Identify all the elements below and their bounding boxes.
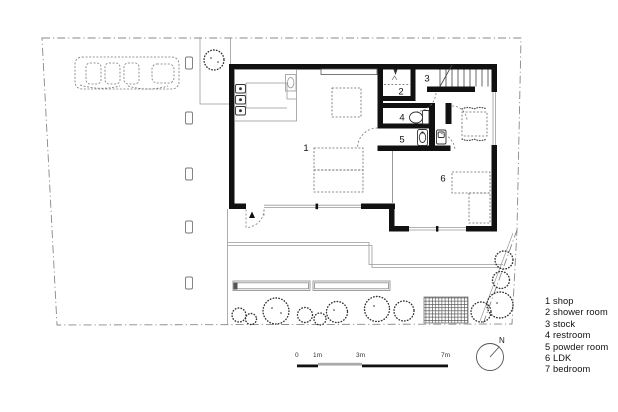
east-window (492, 92, 498, 145)
tree-icon (365, 297, 390, 322)
scale-7m: 7m (441, 352, 450, 359)
tree-icon (327, 302, 348, 323)
washing-machine-icon (437, 130, 447, 144)
tree-icon (298, 308, 313, 323)
room-label-stock: 3 (424, 74, 429, 85)
tree-center-dots (210, 57, 498, 314)
ldk-furniture (452, 112, 490, 223)
toilet-icon (410, 111, 430, 125)
shop-furniture (314, 88, 363, 192)
dining-chairs (462, 108, 487, 141)
legend-item: 5 powder room (545, 342, 608, 353)
north-label: N (499, 336, 505, 345)
bench-planters (233, 281, 390, 291)
tree-icon (263, 298, 289, 324)
shop-shelf (321, 69, 377, 75)
legend-item: 3 stock (545, 319, 608, 330)
room-label-shop: 1 (303, 143, 308, 154)
room-label-restroom: 4 (399, 113, 404, 124)
site-plan-drawing: 1 2 3 4 5 6 0 1m 3m 7m N (0, 0, 618, 412)
room-label-powder: 5 (399, 135, 404, 146)
paving-hatch (424, 297, 468, 323)
scale-0: 0 (295, 352, 299, 359)
legend-item: 4 restroom (545, 330, 608, 341)
room-legend: 1 shop 2 shower room 3 stock 4 restroom … (545, 296, 608, 376)
tree-icon (204, 50, 224, 70)
car-outline (75, 57, 179, 89)
scale-bar: 0 1m 3m 7m (295, 352, 450, 367)
room-label-shower: 2 (398, 87, 403, 98)
entry-arrow-icon (249, 212, 255, 219)
scale-3m: 3m (356, 352, 365, 359)
tree-icon (232, 308, 246, 322)
fence-line (480, 233, 513, 321)
legend-item: 6 LDK (545, 353, 608, 364)
tree-icon (394, 301, 414, 321)
shop-front-window (264, 204, 361, 210)
stove-icon (236, 85, 246, 116)
scale-1m: 1m (313, 352, 322, 359)
room-label-ldk: 6 (440, 174, 445, 185)
north-indicator: N (477, 336, 506, 371)
path-lines (200, 38, 503, 325)
shower-marks (384, 70, 410, 85)
legend-item: 7 bedroom (545, 364, 608, 375)
planter-end-cap (234, 283, 238, 290)
tree-icon (495, 251, 513, 269)
tree-icon (314, 313, 326, 325)
floor-plan-canvas: 1 2 3 4 5 6 0 1m 3m 7m N 1 shop 2 shower… (0, 0, 618, 412)
tree-icon (487, 292, 513, 318)
ldk-south-window (409, 226, 466, 232)
tree-icon (246, 314, 257, 325)
legend-item: 2 shower room (545, 307, 608, 318)
site-boundary-line (42, 38, 521, 325)
washbasin-icon (418, 130, 428, 146)
parking-posts (186, 57, 193, 289)
legend-item: 1 shop (545, 296, 608, 307)
